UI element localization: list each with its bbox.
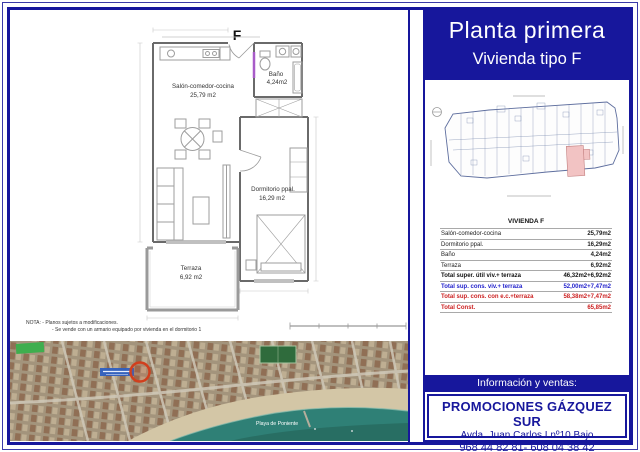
row-value: 58,38m2+7,47m2 xyxy=(563,294,611,300)
company-phones: 968 44 82 81- 608 04 38 42 xyxy=(429,442,625,452)
sports-field xyxy=(260,346,296,363)
row-value: 6,92m2 xyxy=(591,263,611,269)
company-address: Avda. Juan Carlos I nº10 Bajo xyxy=(429,430,625,441)
boat-dot xyxy=(314,428,316,430)
bed xyxy=(257,215,305,273)
row-value: 4,24m2 xyxy=(591,252,611,258)
left-column: F xyxy=(10,10,408,442)
coffee-table xyxy=(193,197,209,224)
green-field xyxy=(16,342,45,354)
row-label: Total super. útil viv.+ terraza xyxy=(441,273,521,279)
title-block: Planta primera Vivienda tipo F xyxy=(425,12,629,80)
note-line-2: - Se vende con un armario equipado por v… xyxy=(52,327,201,334)
info-panel: Planta primera Vivienda tipo F xyxy=(423,10,631,442)
floor-plan: F xyxy=(10,10,408,335)
nightstand xyxy=(246,260,256,270)
plan-note: NOTA: - Planos sujetos a modificaciones.… xyxy=(26,320,201,334)
scale-bar xyxy=(290,323,406,330)
location-map: Playa de Poniente xyxy=(10,341,408,441)
sales-info-bar: Información y ventas: xyxy=(425,375,629,392)
table-row: Terraza 6,92m2 xyxy=(440,260,612,271)
sofa xyxy=(157,168,183,240)
contact-box: PROMOCIONES GÁZQUEZ SUR Avda. Juan Carlo… xyxy=(427,394,627,438)
row-value: 16,29m2 xyxy=(587,242,611,248)
table-row-total-util: Total super. útil viv.+ terraza 46,32m2+… xyxy=(440,270,612,281)
brochure-page: F xyxy=(0,0,640,452)
bano-area: 4,24m2 xyxy=(267,79,288,86)
note-line-1: NOTA: - Planos sujetos a modificaciones. xyxy=(26,320,201,327)
bathtub xyxy=(293,62,302,93)
row-label: Total sup. cons. viv.+ terraza xyxy=(441,284,522,290)
pillow xyxy=(261,263,301,271)
table-row: Dormitorio ppal. 16,29m2 xyxy=(440,239,612,250)
areas-table: VIVIENDA F Salón-comedor-cocina 25,79m2 … xyxy=(440,218,612,313)
dining-set xyxy=(175,119,222,159)
row-label: Total Const. xyxy=(441,305,475,311)
terraza-area: 6,92 m2 xyxy=(180,274,203,281)
table-row-total-const: Total Const. 65,85m2 xyxy=(440,302,612,314)
company-name: PROMOCIONES GÁZQUEZ SUR xyxy=(429,399,625,429)
row-value: 52,00m2+7,47m2 xyxy=(563,284,611,290)
dormitorio-area: 16,29 m2 xyxy=(259,195,285,202)
row-label: Dormitorio ppal. xyxy=(441,242,483,248)
row-label: Total sup. cons. con e.c.+terraza xyxy=(441,294,533,300)
dormitorio-label: Dormitorio ppal. xyxy=(251,186,295,193)
toilet xyxy=(260,51,270,70)
hall-wardrobe xyxy=(256,99,302,117)
bathroom-sink xyxy=(276,46,289,57)
right-column: Planta primera Vivienda tipo F xyxy=(412,10,632,442)
unit-type-letter: F xyxy=(233,27,242,43)
location-label xyxy=(100,368,134,376)
beach-label: Playa de Poniente xyxy=(256,421,298,427)
table-header: VIVIENDA F xyxy=(440,218,612,225)
page-title: Planta primera xyxy=(425,17,629,44)
terraza-label: Terraza xyxy=(181,265,202,272)
bano-label: Baño xyxy=(269,71,284,78)
table-row-total-cons-ec: Total sup. cons. con e.c.+terraza 58,38m… xyxy=(440,291,612,302)
row-label: Baño xyxy=(441,252,455,258)
salon-label: Salón-comedor-cocina xyxy=(172,83,234,90)
table-row: Salón-comedor-cocina 25,79m2 xyxy=(440,228,612,239)
row-label: Terraza xyxy=(441,263,461,269)
building-outline xyxy=(445,102,619,178)
vertical-divider xyxy=(408,10,410,442)
boat-dot xyxy=(351,430,353,432)
table-row-total-cons: Total sup. cons. viv.+ terraza 52,00m2+7… xyxy=(440,281,612,292)
row-value: 25,79m2 xyxy=(587,231,611,237)
page-subtitle: Vivienda tipo F xyxy=(425,50,629,69)
table-row: Baño 4,24m2 xyxy=(440,249,612,260)
row-value: 46,32m2+6,92m2 xyxy=(563,273,611,279)
tv-unit xyxy=(223,165,230,238)
washer xyxy=(291,46,301,57)
north-symbol xyxy=(433,108,442,117)
site-marker-circle xyxy=(131,363,150,382)
row-value: 65,85m2 xyxy=(587,305,611,311)
building-key-plan xyxy=(427,88,627,214)
salon-area: 25,79 m2 xyxy=(190,92,216,99)
row-label: Salón-comedor-cocina xyxy=(441,231,501,237)
